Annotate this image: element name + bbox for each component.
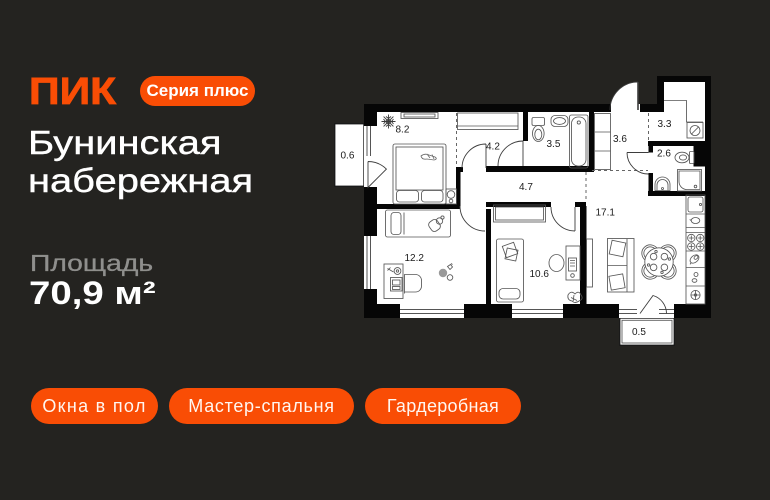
svg-text:10.6: 10.6: [530, 269, 550, 280]
svg-text:0.6: 0.6: [341, 151, 355, 162]
svg-text:8.2: 8.2: [396, 125, 410, 136]
svg-text:4.2: 4.2: [486, 142, 500, 153]
svg-text:3.5: 3.5: [547, 139, 561, 150]
svg-text:4.7: 4.7: [519, 182, 533, 193]
svg-text:12.2: 12.2: [405, 253, 425, 264]
svg-text:3.3: 3.3: [658, 119, 672, 130]
svg-text:17.1: 17.1: [596, 208, 616, 219]
svg-text:0.5: 0.5: [632, 327, 646, 338]
svg-text:2.6: 2.6: [657, 149, 671, 160]
svg-text:3.6: 3.6: [613, 134, 627, 145]
